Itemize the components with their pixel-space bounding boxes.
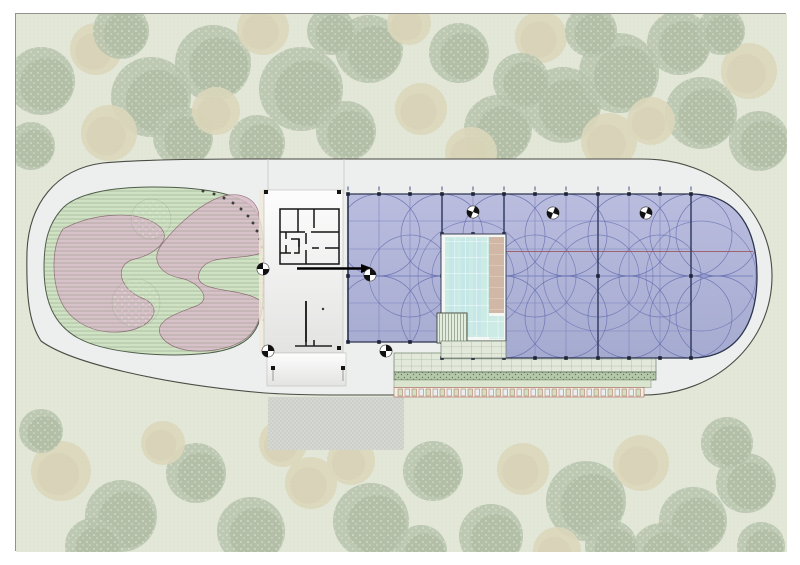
tree [192, 87, 240, 135]
plant-cell [496, 389, 501, 396]
plant-cell [489, 389, 494, 396]
survey-marker-icon [380, 345, 392, 357]
plant-cell [636, 389, 641, 396]
plant-cell [608, 389, 613, 396]
column-marker [337, 346, 341, 350]
tree [316, 101, 376, 161]
plant-cell [531, 389, 536, 396]
column-marker [264, 190, 268, 194]
plant-cell [433, 389, 438, 396]
plant-cell [447, 389, 452, 396]
plant-cell [503, 389, 508, 396]
column-marker [271, 366, 275, 370]
plant-cell [475, 389, 480, 396]
plant-cell [552, 389, 557, 396]
building-footprint [267, 353, 346, 386]
tree [395, 83, 447, 135]
plant-cell [426, 389, 431, 396]
plant-cell [587, 389, 592, 396]
plant-cell [559, 389, 564, 396]
plant-cell [517, 389, 522, 396]
tree [81, 105, 137, 161]
tree [141, 421, 185, 465]
tree [497, 443, 549, 495]
tree [701, 417, 753, 469]
garden-area [41, 184, 269, 358]
plant-cell [629, 389, 634, 396]
building [259, 190, 346, 386]
plant-cell [510, 389, 515, 396]
driveway [268, 397, 404, 450]
pool-courtyard [437, 234, 506, 358]
tree [729, 111, 787, 171]
drawing-frame [15, 13, 786, 551]
page [0, 0, 800, 565]
plant-cell [468, 389, 473, 396]
tree [665, 77, 737, 149]
plant-cell [573, 389, 578, 396]
plant-cell [594, 389, 599, 396]
survey-marker-icon [262, 345, 274, 357]
plant-cell [440, 389, 445, 396]
plant-cell [524, 389, 529, 396]
building-footprint [264, 190, 343, 353]
tree [19, 409, 63, 453]
column-marker [341, 366, 345, 370]
plant-cell [461, 389, 466, 396]
plant-cell [412, 389, 417, 396]
tree [403, 441, 463, 501]
column-marker [337, 190, 341, 194]
tree [493, 53, 549, 109]
plant-cell [545, 389, 550, 396]
tree [429, 23, 489, 83]
plant-cell [615, 389, 620, 396]
plant-cell [580, 389, 585, 396]
plant-cell [601, 389, 606, 396]
plant-cell [482, 389, 487, 396]
plant-cell [538, 389, 543, 396]
plant-cell [405, 389, 410, 396]
plant-cell [566, 389, 571, 396]
lawn-band [394, 380, 651, 388]
survey-marker-icon [364, 269, 376, 281]
site-plan-drawing [16, 14, 787, 552]
plant-cell [419, 389, 424, 396]
survey-marker-icon [257, 263, 269, 275]
tree [627, 97, 675, 145]
tree [613, 435, 669, 491]
plant-cell [622, 389, 627, 396]
planting-bands [394, 353, 656, 397]
plant-cell [454, 389, 459, 396]
plant-cell [398, 389, 403, 396]
